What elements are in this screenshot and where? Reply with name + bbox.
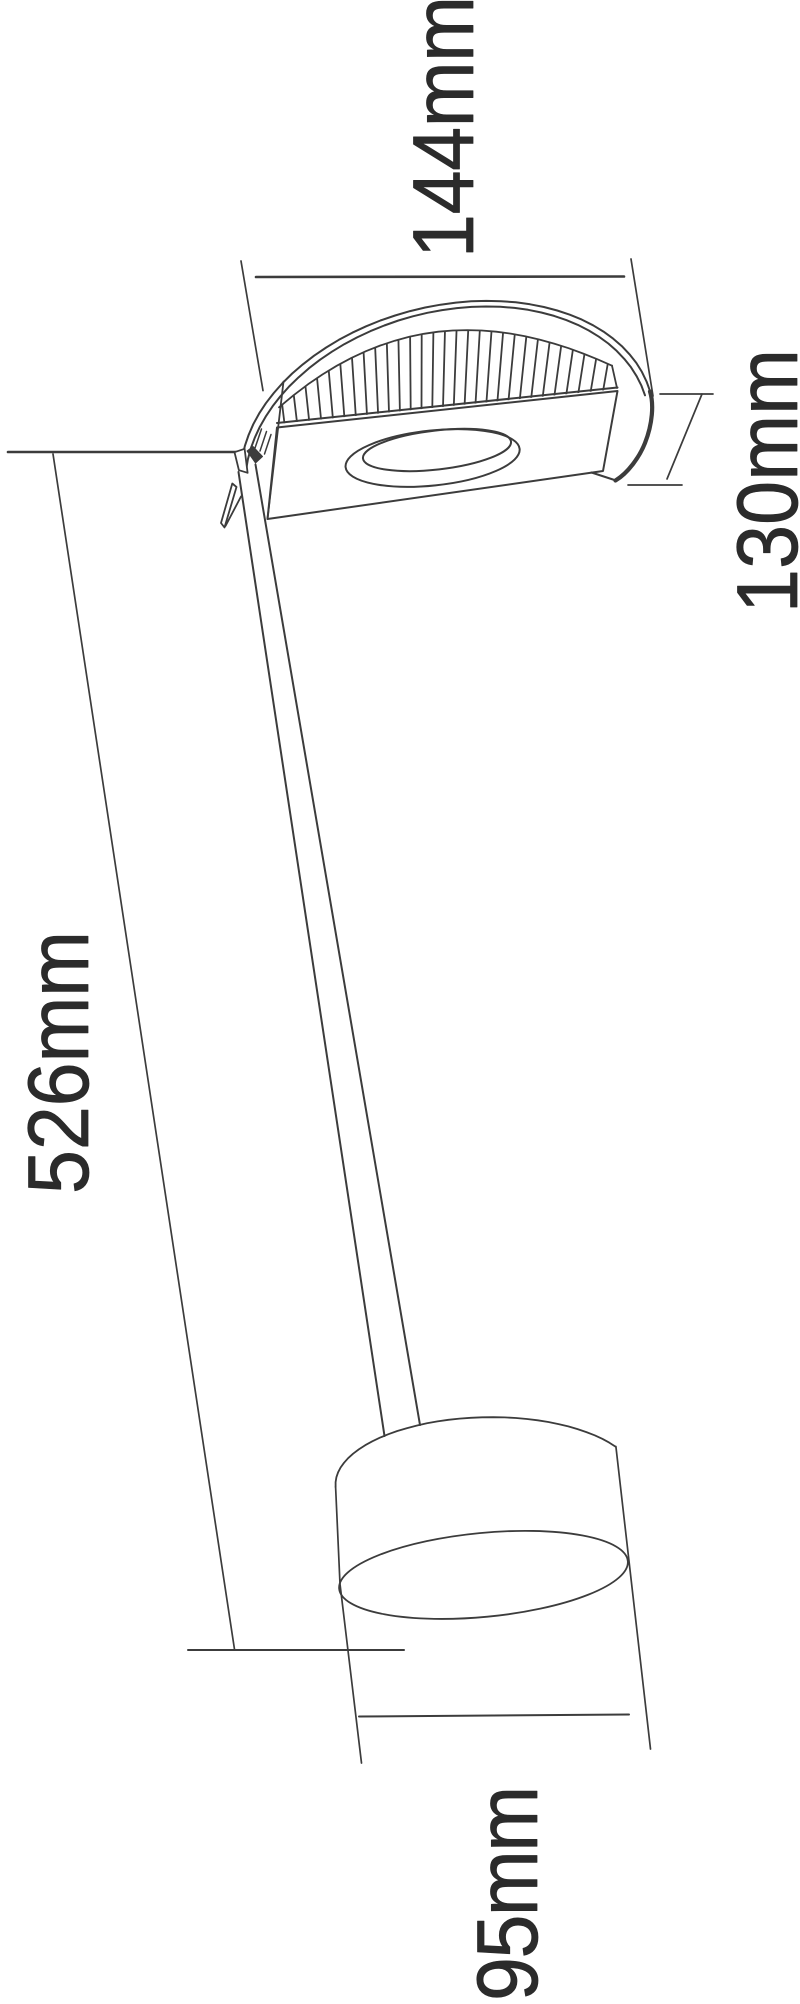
svg-text:526mm: 526mm	[10, 931, 107, 1194]
svg-text:95mm: 95mm	[459, 1786, 556, 2001]
svg-text:144mm: 144mm	[395, 0, 492, 258]
svg-text:130mm: 130mm	[719, 349, 800, 613]
